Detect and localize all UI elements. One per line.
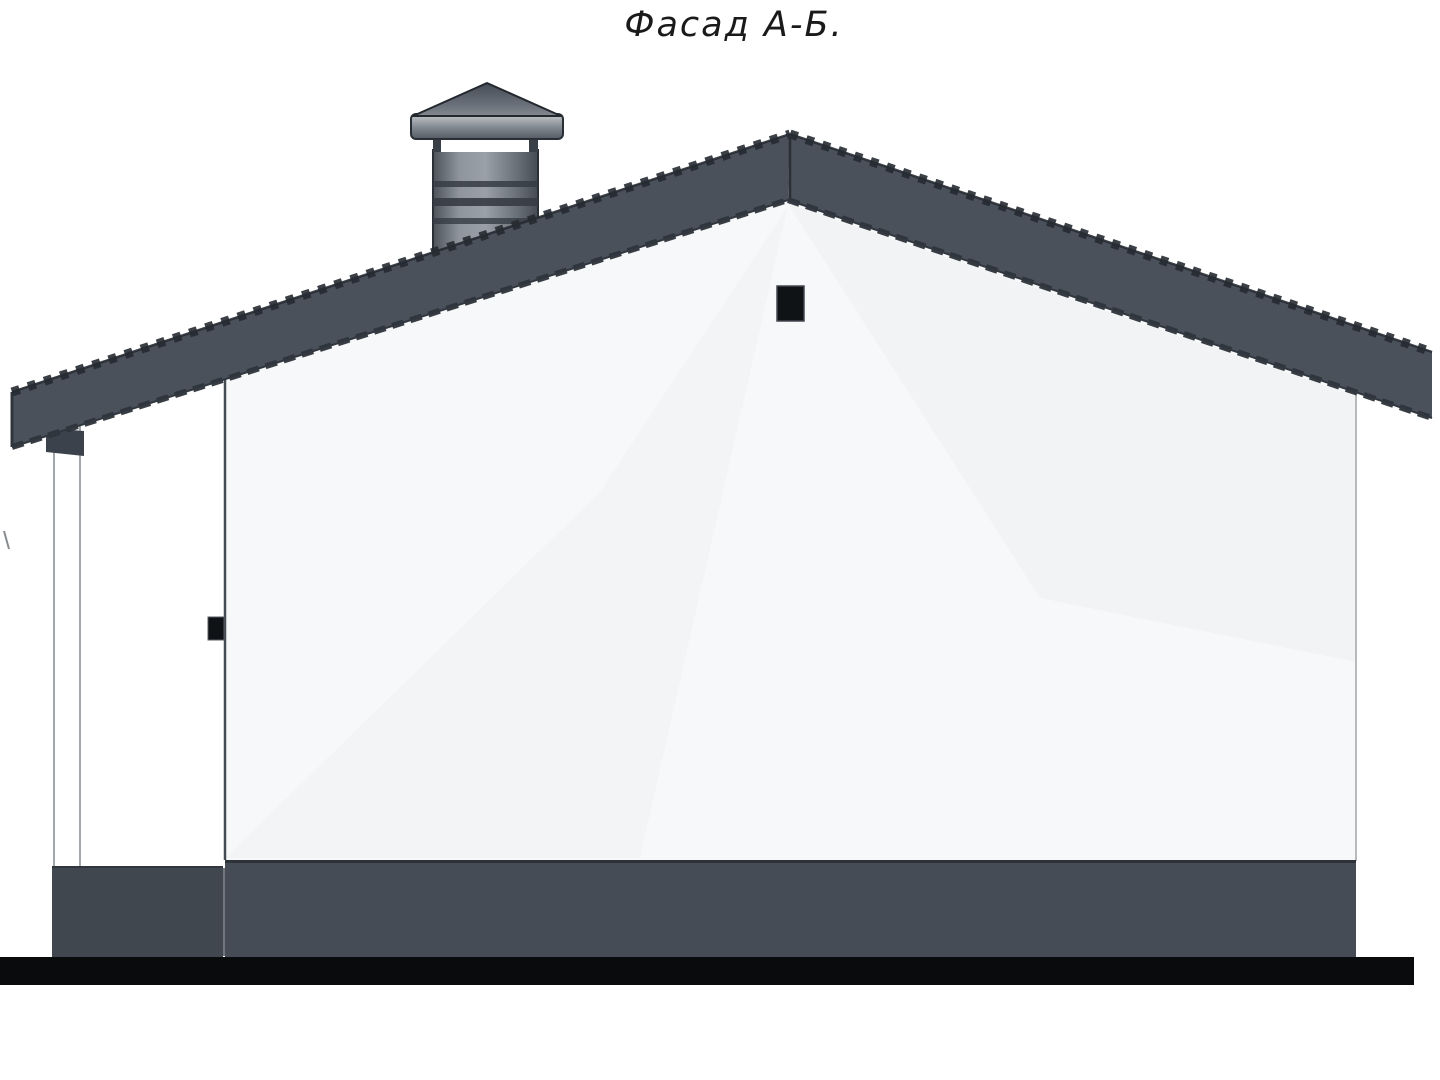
porch-group: [4, 426, 224, 866]
stray-tick-mark: [4, 531, 9, 549]
chimney-pyramid-cap: [413, 83, 561, 116]
plinth-group: [52, 860, 1356, 959]
gable-vent-opening: [777, 286, 804, 321]
ground-line: [0, 957, 1414, 985]
facade-drawing: [0, 0, 1440, 1080]
main-plinth: [225, 860, 1356, 959]
door-handle: [208, 617, 224, 640]
chimney-cap-plate: [411, 114, 563, 139]
chimney-band-2: [433, 198, 538, 206]
facade-sheet: Фасад А-Б.: [0, 0, 1440, 1080]
chimney-band-1: [433, 181, 538, 187]
porch-plinth: [52, 866, 223, 959]
